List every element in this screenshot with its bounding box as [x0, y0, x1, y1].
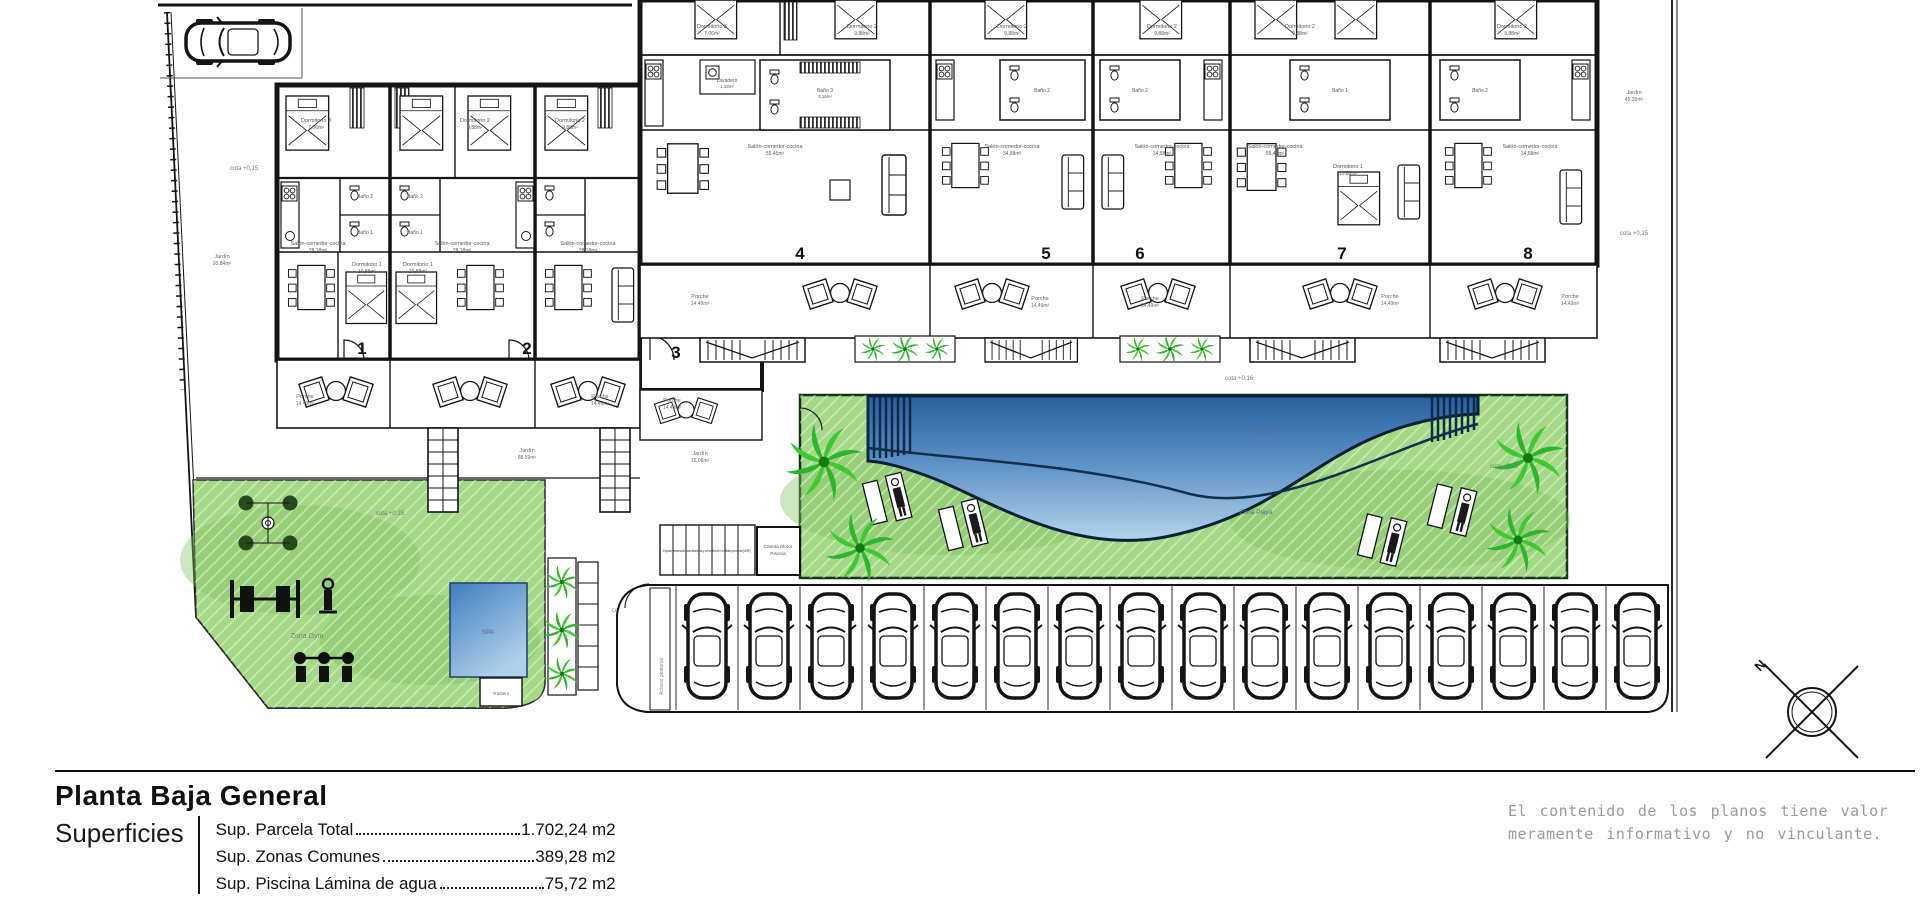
porches-right: Porche14,49m² Porche14,49m² Porche14,49m… [640, 265, 1597, 382]
zona-playa-label: Zona Playa [1240, 509, 1273, 516]
zona-gym-lawn: Zona Gym SPA Trastero cota +0,15 [180, 480, 545, 708]
svg-text:14,49m²: 14,49m² [296, 401, 315, 407]
svg-text:Porche: Porche [591, 394, 608, 400]
superficie-row: Sup. Zonas Comunes389,28 m2 [216, 847, 616, 867]
gym-equipment-icon [294, 652, 354, 682]
svg-text:Dormitorio 2: Dormitorio 2 [847, 24, 877, 30]
trastero-label: Trastero [493, 691, 510, 696]
svg-text:14,49m²: 14,49m² [1031, 303, 1050, 309]
svg-text:Porche: Porche [1141, 296, 1158, 302]
svg-text:Salón-comedor-cocina: Salón-comedor-cocina [1134, 144, 1190, 150]
svg-text:28,18m²: 28,18m² [579, 248, 598, 254]
unit-number-5: 5 [1041, 244, 1050, 263]
svg-text:9,88m²: 9,88m² [467, 125, 483, 131]
spa-label: SPA [482, 629, 495, 636]
unit-number-3: 3 [671, 343, 680, 362]
svg-text:93,84m²: 93,84m² [213, 261, 232, 267]
car-icon [1364, 594, 1414, 698]
svg-text:cota +0,15: cota +0,15 [1620, 231, 1649, 237]
svg-text:10,88m²: 10,88m² [409, 269, 428, 275]
car-icon [1426, 594, 1476, 698]
svg-text:Porche: Porche [1031, 296, 1048, 302]
caseta-motor: Caseta Motor Piscina [757, 527, 800, 575]
acceso-label: Acceso peatonal [659, 658, 665, 695]
superficies-divider [198, 816, 200, 894]
svg-text:Baño 2: Baño 2 [1472, 88, 1488, 94]
car-icon [806, 594, 856, 698]
floor-plan-drawing: cota +0,15 Jardín 93,84m² 1 2 3 [0, 0, 1920, 775]
svg-text:Dormitorio 2: Dormitorio 2 [997, 24, 1027, 30]
unit-number-4: 4 [795, 244, 805, 263]
svg-text:Porche: Porche [1561, 294, 1578, 300]
pool-lawn: Piscina Zona Playa cota +0,15 [780, 395, 1570, 582]
svg-text:28,18m²: 28,18m² [453, 248, 472, 254]
car-icon [992, 594, 1042, 698]
jardin-right: Jardín45,26m² cota +0,15 [1620, 90, 1649, 237]
svg-text:88,59m²: 88,59m² [518, 455, 537, 461]
svg-text:55,45m²: 55,45m² [766, 151, 785, 157]
svg-text:Salón-comedor-cocina: Salón-comedor-cocina [1247, 144, 1303, 150]
disclaimer: El contenido de los planos tiene valor m… [1508, 800, 1918, 847]
car-icon [1612, 594, 1662, 698]
svg-text:9,88m²: 9,88m² [1504, 31, 1520, 37]
svg-text:Piscina: Piscina [770, 551, 786, 557]
car-icon [1488, 594, 1538, 698]
svg-text:Jardín: Jardín [692, 451, 707, 457]
car-icon [868, 594, 918, 698]
svg-text:14,49m²: 14,49m² [1141, 303, 1160, 309]
svg-text:1,43m²: 1,43m² [720, 84, 735, 89]
stairs-icon [428, 428, 458, 512]
svg-text:14,49m²: 14,49m² [691, 301, 710, 307]
svg-text:Porche: Porche [1381, 294, 1398, 300]
svg-text:Salón-comedor-cocina: Salón-comedor-cocina [290, 241, 346, 247]
svg-text:55,45m²: 55,45m² [1266, 151, 1285, 157]
svg-text:34,58m²: 34,58m² [1521, 151, 1540, 157]
unit-number-6: 6 [1135, 244, 1144, 263]
svg-text:14,49m²: 14,49m² [591, 401, 610, 407]
unit-number-2: 2 [522, 339, 531, 358]
svg-text:34,58m²: 34,58m² [1003, 151, 1022, 157]
svg-text:Salón-comedor-cocina: Salón-comedor-cocina [560, 241, 616, 247]
svg-text:9,88m²: 9,88m² [562, 125, 578, 131]
svg-text:7,06m²: 7,06m² [704, 31, 720, 37]
svg-text:9,88m²: 9,88m² [1292, 31, 1308, 37]
palm-column [543, 558, 598, 695]
svg-text:Dormitorio 1: Dormitorio 1 [403, 262, 433, 268]
svg-text:Salón-comedor-cocina: Salón-comedor-cocina [984, 144, 1040, 150]
svg-text:10,88m²: 10,88m² [358, 269, 377, 275]
svg-text:Dormitorio 1: Dormitorio 1 [352, 262, 382, 268]
svg-text:Salón-comedor-cocina: Salón-comedor-cocina [434, 241, 490, 247]
zona-gym-label: Zona Gym [291, 633, 324, 640]
svg-text:Salón-comedor-cocina: Salón-comedor-cocina [1502, 144, 1558, 150]
svg-text:Dormitorio 2: Dormitorio 2 [1147, 24, 1177, 30]
car-icon [1054, 594, 1104, 698]
jardin-label: Jardín [214, 254, 229, 260]
unit-number-1: 1 [357, 339, 366, 358]
superficies-table: Sup. Parcela Total1.702,24 m2 Sup. Zonas… [216, 816, 616, 894]
svg-text:9,88m²: 9,88m² [1004, 31, 1020, 37]
svg-text:34,58m²: 34,58m² [1153, 151, 1172, 157]
svg-text:Dormitorio 3: Dormitorio 3 [301, 118, 331, 124]
svg-text:Jardín: Jardín [1626, 90, 1641, 96]
cota-label: cota +0,15 [1490, 464, 1519, 470]
unit-number-7: 7 [1337, 244, 1346, 263]
car-icon [1302, 594, 1352, 698]
svg-text:Porche: Porche [691, 294, 708, 300]
svg-text:3,16m²: 3,16m² [818, 94, 833, 99]
svg-text:Dormitorio 2: Dormitorio 2 [1285, 24, 1315, 30]
svg-text:Salón-comedor-cocina: Salón-comedor-cocina [747, 144, 803, 150]
svg-text:9,88m²: 9,88m² [854, 31, 870, 37]
svg-text:28,18m²: 28,18m² [309, 248, 328, 254]
svg-text:Jardín: Jardín [519, 448, 534, 454]
svg-text:Porche: Porche [663, 398, 680, 404]
svg-text:Dormitorio 2: Dormitorio 2 [1497, 24, 1527, 30]
svg-text:Porche: Porche [296, 394, 313, 400]
car-icon [744, 594, 794, 698]
svg-text:Baño 2: Baño 2 [407, 194, 423, 200]
car-icon [1550, 594, 1600, 698]
svg-text:14,49m²: 14,49m² [1381, 301, 1400, 307]
svg-text:Dormitorio 2: Dormitorio 2 [460, 118, 490, 124]
svg-text:Dormitorio 1: Dormitorio 1 [1333, 164, 1363, 170]
car-icon [1240, 594, 1290, 698]
bike-note: Espacio reservado para bicicletas y vehí… [663, 549, 751, 553]
svg-text:14,49m²: 14,49m² [1561, 301, 1580, 307]
cota-label: cota +0,16 [1225, 376, 1254, 382]
parking-lot: Acceso peatonal [617, 584, 1668, 712]
car-icon [1178, 594, 1228, 698]
bike-parking: Espacio reservado para bicicletas y vehí… [660, 525, 755, 575]
parked-car-icon [186, 17, 290, 67]
svg-text:7,06m²: 7,06m² [308, 125, 324, 131]
title-block: Planta Baja General Superficies Sup. Par… [0, 770, 1920, 894]
svg-text:Baño 2: Baño 2 [1132, 88, 1148, 94]
superficie-row: Sup. Piscina Lámina de agua75,72 m2 [216, 874, 616, 894]
svg-text:14,49m²: 14,49m² [663, 405, 682, 411]
unit-number-8: 8 [1523, 244, 1532, 263]
superficies-heading: Superficies [55, 816, 198, 894]
svg-text:Caseta Motor: Caseta Motor [764, 544, 793, 550]
svg-text:Baño 1: Baño 1 [357, 230, 373, 236]
svg-text:9,88m²: 9,88m² [1154, 31, 1170, 37]
superficie-row: Sup. Parcela Total1.702,24 m2 [216, 820, 616, 840]
stairs-icon [600, 428, 630, 512]
svg-text:Dormitorio 2: Dormitorio 2 [555, 118, 585, 124]
svg-text:15,06m²: 15,06m² [691, 458, 710, 464]
svg-text:Baño 1: Baño 1 [407, 230, 423, 236]
svg-text:Dormitorio 3: Dormitorio 3 [697, 24, 727, 30]
svg-text:Baño 2: Baño 2 [357, 194, 373, 200]
cota-label: cota +0,15 [230, 166, 259, 172]
svg-text:10,88m²: 10,88m² [1339, 171, 1358, 177]
piscina-label: Piscina [1253, 428, 1274, 435]
car-icon [1116, 594, 1166, 698]
svg-text:45,26m²: 45,26m² [1625, 97, 1644, 103]
building-block-right: 4 5 6 7 8 Dormitorio 37,06m² Dormitorio … [640, 0, 1597, 289]
car-icon [930, 594, 980, 698]
cota-label: cota +0,15 [376, 511, 405, 517]
svg-text:Baño 2: Baño 2 [1034, 88, 1050, 94]
svg-text:Baño 1: Baño 1 [1332, 88, 1348, 94]
site-plan-sheet: cota +0,15 Jardín 93,84m² 1 2 3 [0, 0, 1920, 920]
north-compass: N [1752, 657, 1858, 758]
title-rule [55, 770, 1915, 772]
north-label: N [1752, 657, 1769, 674]
car-icon [682, 594, 732, 698]
